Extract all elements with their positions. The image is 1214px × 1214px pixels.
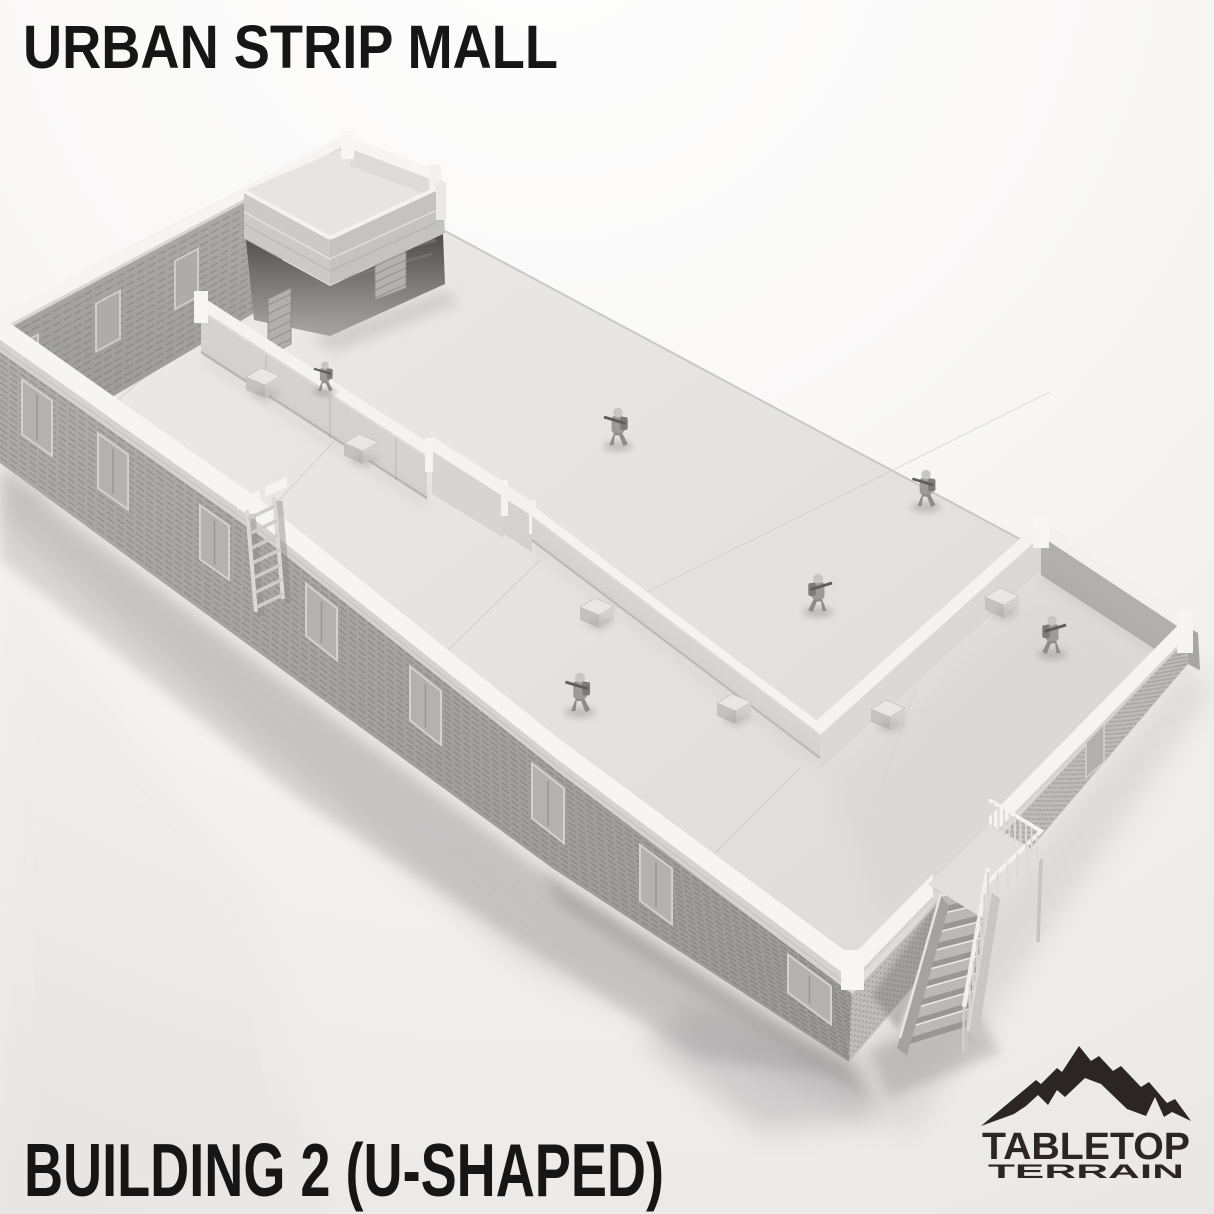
svg-text:BUILDING 2 (U-SHAPED): BUILDING 2 (U-SHAPED) <box>24 1128 664 1212</box>
svg-text:TERRAIN: TERRAIN <box>988 1162 1184 1183</box>
svg-text:URBAN STRIP MALL: URBAN STRIP MALL <box>23 13 558 81</box>
